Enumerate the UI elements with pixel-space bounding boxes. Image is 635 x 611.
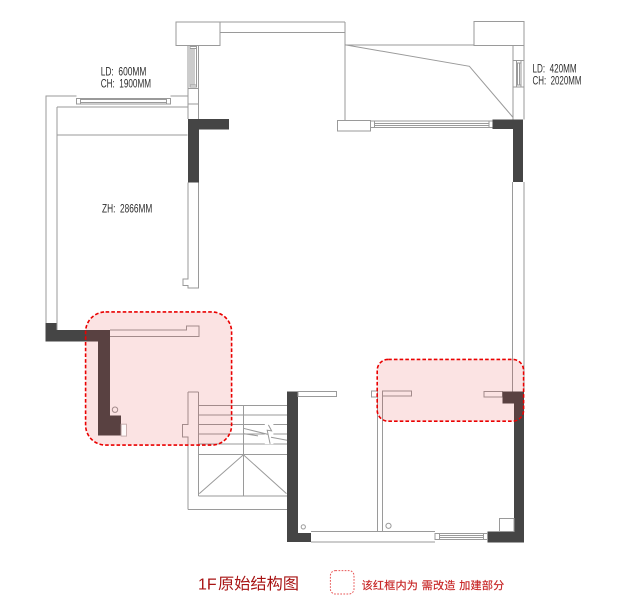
svg-text:1F: 1F (198, 576, 217, 593)
svg-text:ZH: 2866MM: ZH: 2866MM (102, 204, 152, 216)
svg-text:LD: 600MM: LD: 600MM (101, 67, 147, 79)
svg-text:CH: 1900MM: CH: 1900MM (101, 78, 151, 90)
svg-text:CH: 2020MM: CH: 2020MM (533, 76, 582, 88)
svg-text:LD: 420MM: LD: 420MM (533, 63, 577, 75)
